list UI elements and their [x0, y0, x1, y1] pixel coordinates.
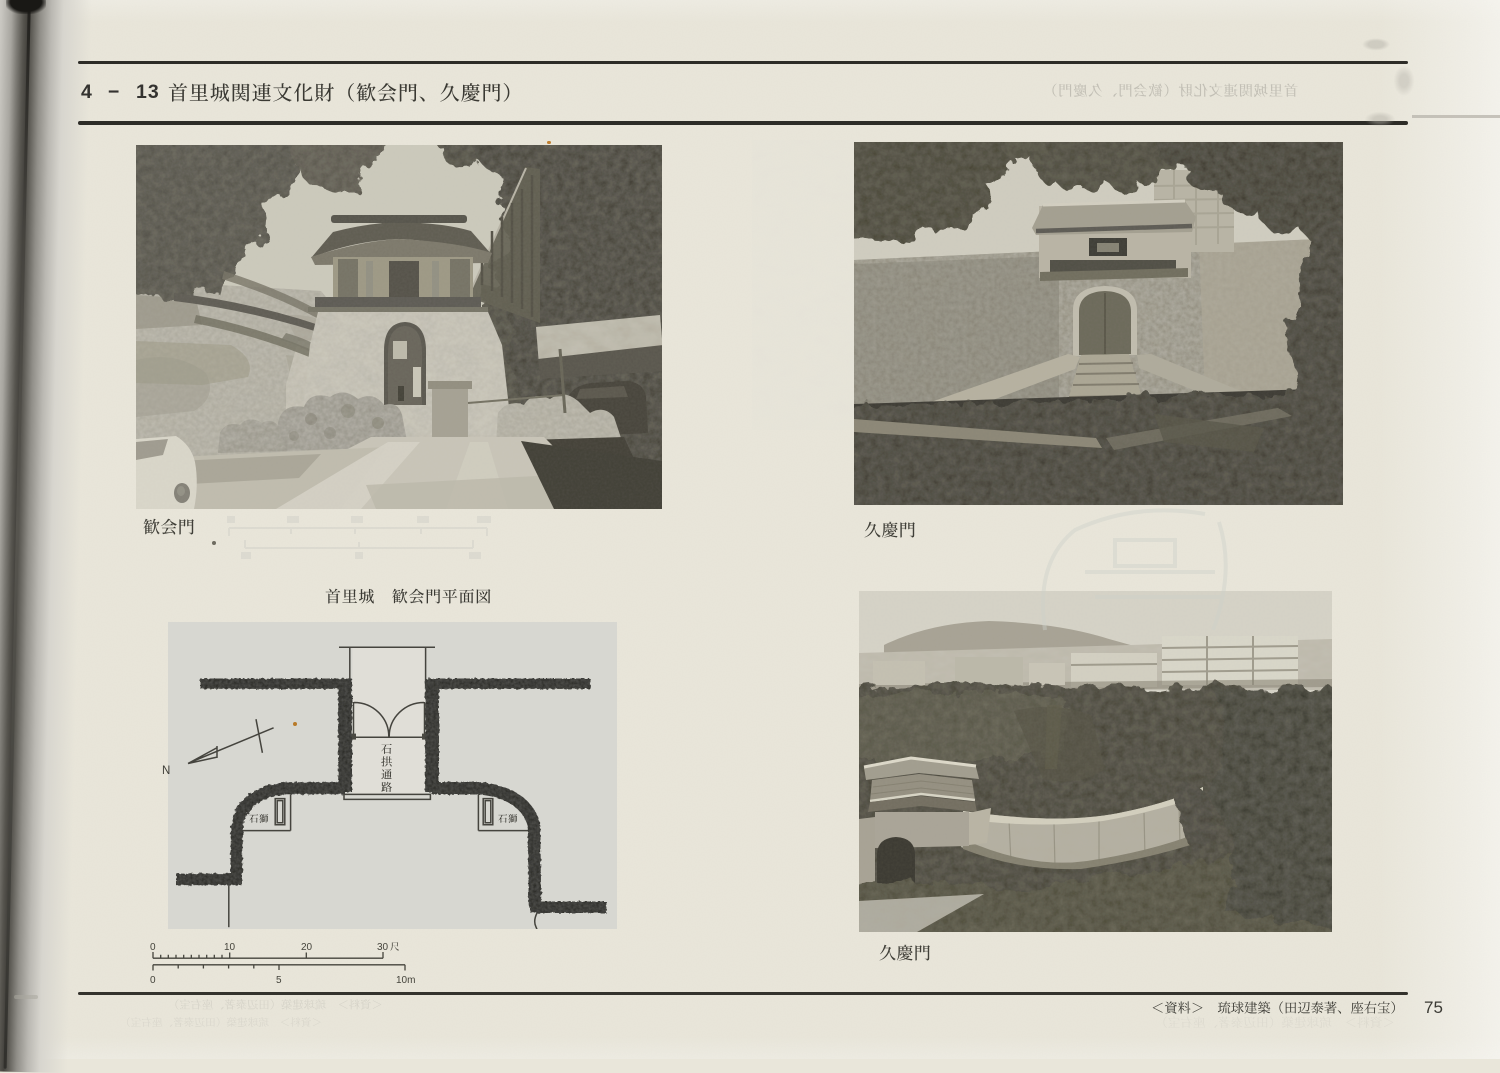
svg-text:10m: 10m [396, 975, 415, 986]
svg-text:20: 20 [301, 942, 313, 953]
svg-text:0: 0 [150, 942, 156, 953]
svg-text:0: 0 [150, 975, 156, 986]
svg-text:10: 10 [224, 942, 236, 953]
svg-text:30: 30 [377, 942, 389, 953]
svg-text:5: 5 [276, 975, 282, 986]
